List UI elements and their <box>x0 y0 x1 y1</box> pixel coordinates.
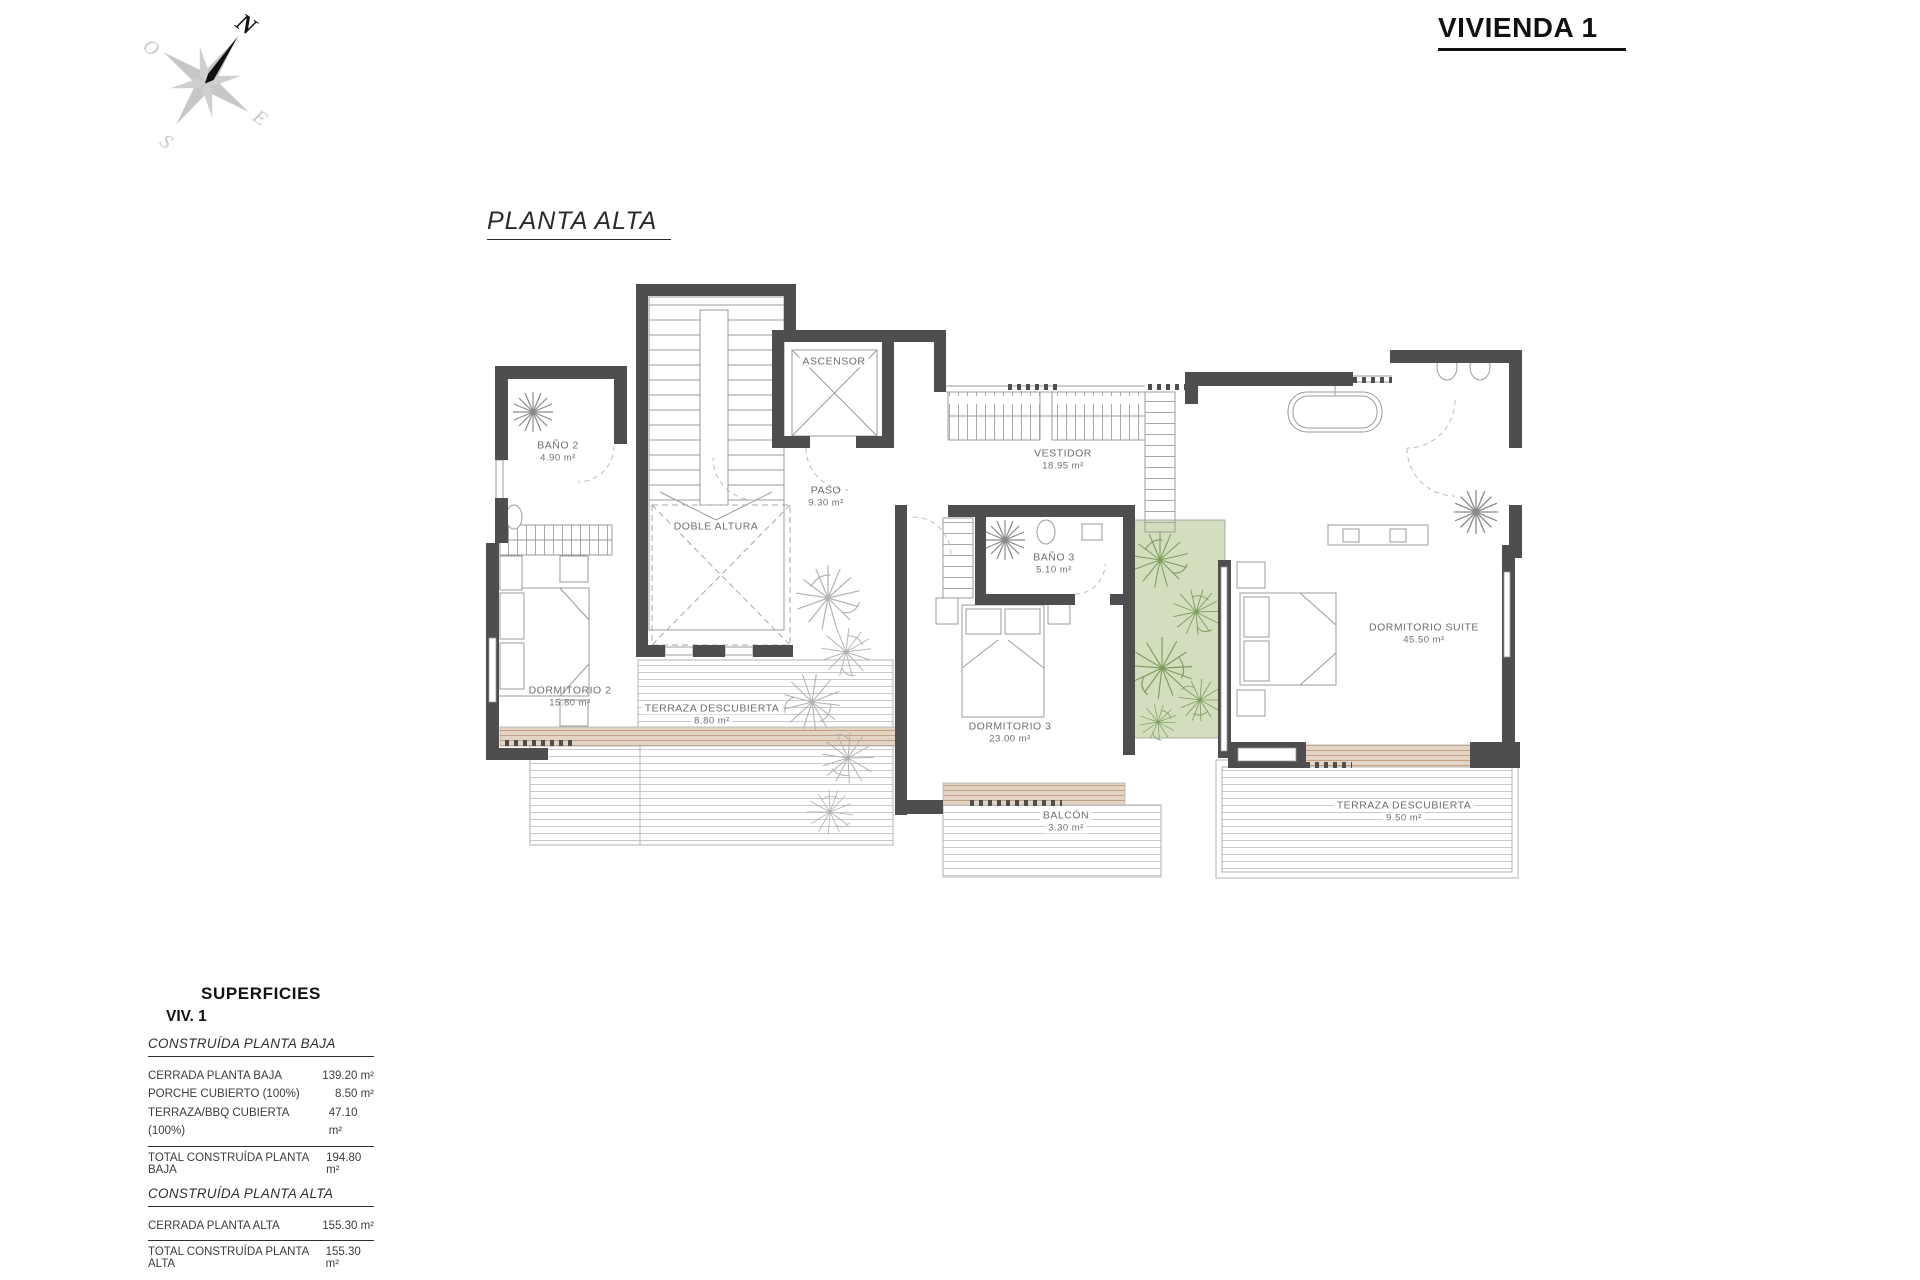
total-planta-baja: TOTAL CONSTRUÍDA PLANTA BAJA 194.80 m² <box>148 1146 374 1176</box>
green-patio <box>1124 520 1230 745</box>
room-label-dormitorio3: DORMITORIO 3 23.00 m² <box>969 721 1052 746</box>
sheet-title: VIVIENDA 1 <box>1438 12 1626 51</box>
compass-rose: N O E S <box>118 6 308 161</box>
section-rows-planta-alta: CERRADA PLANTA ALTA 155.30 m² <box>148 1217 374 1235</box>
compass-o: O <box>139 35 163 61</box>
surfaces-subtitle: VIV. 1 <box>148 1008 374 1026</box>
room-label-bano3: BAÑO 3 5.10 m² <box>1033 552 1075 577</box>
room-label-bano2: BAÑO 2 4.90 m² <box>537 440 579 465</box>
room-label-paso: PASO 9.30 m² <box>808 485 844 510</box>
compass-n: N <box>230 8 262 42</box>
compass-s: S <box>156 130 177 154</box>
total-planta-alta: TOTAL CONSTRUÍDA PLANTA ALTA 155.30 m² <box>148 1240 374 1270</box>
section-heading-planta-baja: CONSTRUÍDA PLANTA BAJA <box>148 1036 374 1057</box>
room-label-doble-altura: DOBLE ALTURA <box>671 520 762 533</box>
room-label-ascensor: ASCENSOR <box>800 355 869 368</box>
table-row: PORCHE CUBIERTO (100%) 8.50 m² <box>148 1085 374 1103</box>
room-label-dormitorio-suite: DORMITORIO SUITE 45.50 m² <box>1369 622 1479 647</box>
plan-title: PLANTA ALTA <box>487 207 671 240</box>
room-label-terraza-der: TERRAZA DESCUBIERTA 9.50 m² <box>1334 800 1475 825</box>
room-label-terraza-izq: TERRAZA DESCUBIERTA 8.80 m² <box>642 703 783 728</box>
room-label-balcon: BALCÓN 3.30 m² <box>1040 810 1092 835</box>
compass-e: E <box>248 105 271 131</box>
surfaces-table: SUPERFICIES VIV. 1 CONSTRUÍDA PLANTA BAJ… <box>148 984 374 1280</box>
sheet: N O E S VIVIENDA 1 PLANTA ALTA BAÑO 2 4.… <box>0 0 1920 1280</box>
table-row: CERRADA PLANTA ALTA 155.30 m² <box>148 1217 374 1235</box>
section-heading-planta-alta: CONSTRUÍDA PLANTA ALTA <box>148 1186 374 1207</box>
table-row: CERRADA PLANTA BAJA 139.20 m² <box>148 1067 374 1085</box>
room-label-dormitorio2: DORMITORIO 2 15.80 m² <box>529 685 612 710</box>
surfaces-title: SUPERFICIES <box>148 984 374 1004</box>
table-row: TERRAZA/BBQ CUBIERTA (100%) 47.10 m² <box>148 1104 374 1141</box>
section-rows-planta-baja: CERRADA PLANTA BAJA 139.20 m² PORCHE CUB… <box>148 1067 374 1141</box>
room-label-vestidor: VESTIDOR 18.95 m² <box>1034 448 1092 473</box>
